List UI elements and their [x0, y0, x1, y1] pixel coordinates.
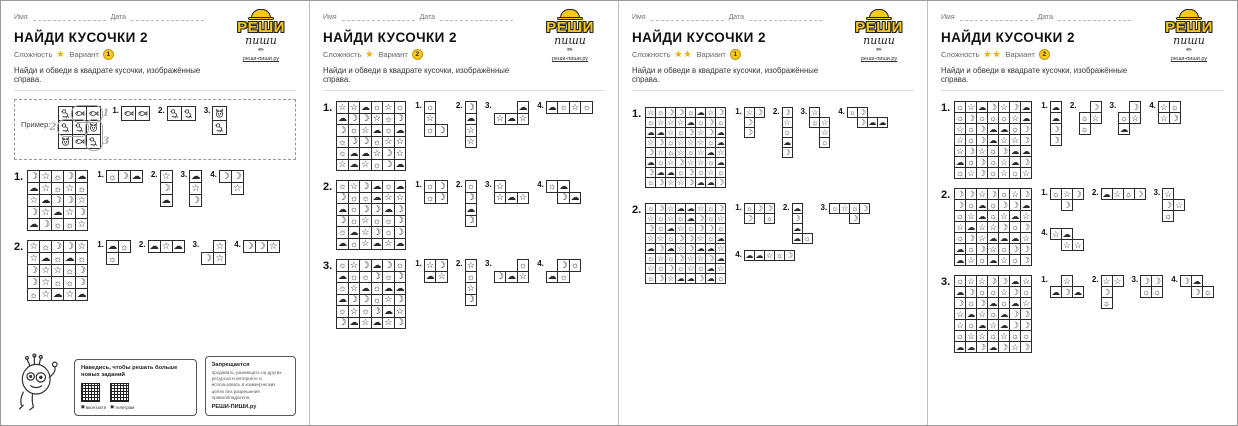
grid-row: ☆☼☽☁☆☆☽ — [954, 134, 1031, 145]
puzzle-piece: 1.☼☽☽☽☼ — [735, 203, 774, 223]
piece-grid: ☁☁☽☽ — [1050, 101, 1061, 145]
grid-row: ☽☼☆☁☼☁ — [336, 124, 405, 136]
beret-icon — [866, 9, 892, 20]
grid-row: ☽☼☁☼☽☽☁ — [954, 199, 1031, 210]
puzzle-row: 1.☽☆☼☽☁☁☆☼☆☼☆☁☽☽☆☽☆☁☆☽☁☽☼☼☆1.☼☽☁2.☆☽☁3.☁… — [14, 170, 296, 230]
grid-row: ☆☁☆☼☽☁ — [336, 159, 405, 171]
grid-row: ☽☆☼☼☽ — [27, 276, 87, 288]
grid-row: ☆☆☁☼☆☼ — [336, 101, 405, 113]
sun-icon: ☼ — [819, 137, 830, 148]
puzzle-row: 1.☆☆☁☼☆☼☁☽☽☆☼☽☽☼☆☁☼☁☼☽☽☼☆☆☼☁☁☆☽☆☆☁☆☼☽☁1.… — [323, 101, 605, 170]
piece-grid: ☁☆☼☽ — [1101, 188, 1145, 199]
logo-word-reshi: РЕШИ — [843, 20, 915, 35]
grid-row: ☆☁☆ — [494, 192, 529, 204]
piece-number: 1. — [415, 259, 422, 268]
puzzle-pieces: 1.☁☁☽☽2.☽☼☆☼3.☽☼☆☁4.☆☼☆☽ — [1041, 101, 1224, 145]
empty-cell — [118, 252, 131, 265]
grid-row: ☁☁☆☼☽ — [744, 250, 794, 260]
example-pieces: 1.2.3. — [112, 106, 289, 134]
piece-grid: ☁☼☼ — [106, 240, 130, 264]
grid-row: ☆☼☆☼☁☽☼☆ — [645, 213, 725, 223]
reshi-pishi-logo: РЕШИпиши✏︎реши-пиши.ру — [843, 9, 915, 62]
moon-icon: ☽ — [1169, 112, 1181, 124]
grid-row: ☆ — [782, 117, 792, 127]
variant-label: Вариант — [1006, 50, 1035, 59]
puzzle-piece: 4.☽☼☁☼ — [537, 259, 580, 282]
grid-row: ☁ — [160, 194, 172, 206]
grid-row: ☼ — [494, 259, 529, 271]
moon-icon: ☽ — [1020, 341, 1032, 353]
puzzle-piece: 3.☽☽☼☼ — [1132, 275, 1163, 297]
grid-row: ☁ — [792, 203, 812, 213]
logo-word-reshi: РЕШИ — [225, 20, 297, 35]
grid-row: ☽ — [782, 147, 792, 157]
grid-row: ☁ — [494, 101, 529, 113]
puzzle-piece: 2.☽☁☆☆ — [456, 101, 476, 147]
piece-grid: ☼☆☼☽☽ — [829, 203, 869, 223]
grid-row: ☁☆☼☁☆☼☽ — [954, 254, 1031, 265]
puzzle-piece: 3.☆☼☆☆☼ — [801, 107, 830, 147]
piece-number: 3. — [801, 107, 808, 116]
puzzle-row: 2.☼☽☆☁☁☆☼☽☆☼☆☼☁☽☼☆☽☼☁☆☼☽☽☼☆☆☼☽☽☆☼☁☁☽☁☆☽☁… — [632, 203, 914, 283]
grid-row: ☁ — [189, 170, 201, 182]
piece-grid: ☆☼☆☆☼ — [809, 107, 829, 147]
star-icon: ☆ — [517, 192, 530, 205]
puzzle-row: 2.☆☼☽☽☆☆☁☼☁☼☽☆☆☼☽☽☆☼☼☽☼☆☁☆☁1.☁☼☼2.☁☆☁3.☆… — [14, 240, 296, 300]
name-date-row: ИмяДата — [14, 12, 204, 21]
puzzle-grid: ☼☽☆☁☁☆☼☽☆☼☆☼☁☽☼☆☽☼☁☆☼☽☽☼☆☆☼☽☽☆☼☁☁☽☁☆☽☁☁☆… — [645, 203, 725, 283]
piece-number: 4. — [1171, 275, 1178, 284]
grid-row: ☽☁☆ — [494, 271, 529, 283]
beret-icon — [1176, 9, 1202, 20]
date-label: Дата — [1038, 14, 1054, 21]
grid-row: ☆☼☽☽☼☁☆☽ — [645, 107, 725, 117]
difficulty-stars-icon: ★ — [365, 49, 374, 60]
promo-title: Наведись, чтобы решать больше новых зада… — [81, 365, 190, 379]
sun-icon: ☼ — [1202, 286, 1214, 298]
piece-number: 2. — [456, 101, 463, 110]
rights-title: Запрещается — [212, 362, 289, 368]
grid-row: ☆☼☽☁☁☼☽ — [954, 123, 1031, 134]
name-blank-line — [960, 12, 1033, 21]
puzzle-grid: ☼☆☆☽☽☁☆☁☽☼☼☆☽☼☽☼☽☁☼☁☆☆☁☆☼☁☽☽☆☼☁☆☁☽☽☼☆☆☼☆… — [954, 275, 1031, 352]
grid-row: ☽ — [1050, 199, 1083, 210]
qr-code-telegram — [110, 383, 129, 402]
grid-row: ☼☆☁☽☆☽☁ — [954, 101, 1031, 112]
puzzle-piece: 1.☆☽☽☽ — [735, 107, 764, 137]
variant-badge: 2 — [412, 49, 423, 60]
puzzle-number: 3. — [323, 260, 332, 272]
puzzle-piece: 2.☆☼☆☽ — [456, 259, 476, 305]
difficulty-label: Сложность — [323, 50, 361, 59]
grid-row: ☆ — [219, 182, 243, 194]
reshi-pishi-logo: РЕШИпиши✏︎реши-пиши.ру — [1153, 9, 1225, 62]
grid-row: ☁☼☽☽☁☽ — [336, 203, 405, 215]
moon-icon: ☽ — [715, 177, 726, 188]
piece-number: 2. — [151, 170, 158, 179]
qr-code-vk — [81, 383, 100, 402]
grid-row: ☼☽☆☁☁☁☆ — [954, 232, 1031, 243]
star-icon: ☆ — [465, 136, 478, 149]
puzzle-number: 2. — [14, 241, 23, 253]
puzzle-pieces: 1.☆☁☽☁2.☆☆☽☼3.☽☽☼☼4.☽☁☽☼ — [1041, 275, 1224, 308]
grid-row: ☁ — [1050, 101, 1061, 112]
puzzle-number: 2. — [632, 204, 641, 216]
grid-row: ☼☆ — [1118, 112, 1140, 123]
puzzle-piece: 3.☆☽☆☼ — [1154, 188, 1185, 221]
puzzle-piece: 2.☽☆☼☁☽ — [773, 107, 792, 157]
instruction-text: Найди и обведи в квадрате кусочки, изобр… — [941, 66, 1156, 84]
piece-grid: ☽☽☆ — [243, 240, 279, 252]
grid-row: ☽☆☁☆☽ — [27, 206, 87, 218]
date-label: Дата — [111, 14, 127, 21]
piece-grid: ☽☼☁☼ — [546, 259, 581, 282]
difficulty-stars-icon: ★★ — [674, 49, 692, 60]
grid-row: ☁☼ — [106, 240, 130, 252]
piece-grid: ☆☽☽☽ — [744, 107, 764, 137]
piece-number: 1. — [1041, 101, 1048, 110]
worksheet-page: ИмяДатаРЕШИпиши✏︎реши-пиши.руНАЙДИ КУСОЧ… — [310, 1, 619, 425]
piece-number: 3. — [181, 170, 188, 179]
puzzle-piece: 2.☁☆☼☽ — [1092, 188, 1145, 199]
mascot-illustration — [14, 353, 66, 416]
logo-word-reshi: РЕШИ — [534, 20, 606, 35]
grid-row: ☽☆ — [201, 252, 225, 264]
puzzle-pieces: 1.☆☽☁☆2.☆☼☆☽3.☼☽☁☆4.☽☼☁☼ — [415, 259, 605, 305]
example-box: Пример:1231.2.3. — [14, 99, 296, 160]
star-icon: ☆ — [213, 252, 226, 265]
grid-row: ☁☼☽☆☼☽☽ — [954, 243, 1031, 254]
piece-number: 1. — [735, 203, 742, 212]
puzzle-number: 1. — [941, 102, 950, 114]
name-date-row: ИмяДата — [941, 12, 1131, 21]
puzzle-piece: 3.☼☆☼☽☽ — [821, 203, 870, 223]
grid-row: ☽☆☆☼☽ — [27, 264, 87, 276]
fish-icon — [121, 106, 136, 121]
piece-grid: ☽☆☼☁☽ — [782, 107, 792, 157]
piece-grid: ☆☼☆☽ — [465, 259, 477, 305]
pencil-icon: ✏︎ — [225, 47, 297, 54]
promo-box: Наведись, чтобы решать больше новых зада… — [74, 359, 197, 416]
grid-row: ☼☆☁☼☆☁☆ — [954, 210, 1031, 221]
grid-row: ☽ — [465, 101, 477, 113]
empty-cell — [1072, 199, 1084, 211]
puzzle-pieces: 1.☼☆☼☽2.☽☁☆☆3.☁☆☁☆4.☁☼☆☼ — [415, 101, 605, 147]
grid-row — [121, 106, 149, 120]
piece-grid: ☁☁☆☼☽ — [744, 250, 794, 260]
puzzle-piece: 1.☼☆☽☽ — [1041, 188, 1083, 210]
piece-grid — [167, 106, 195, 120]
grid-row: ☼☽☆☆☽☁☁☽ — [645, 177, 725, 187]
puzzle-piece: 4.☽☁☽☼ — [1171, 275, 1213, 297]
grid-row: ☼☁☆☽☼☽ — [336, 226, 405, 238]
piece-grid: ☽☁☆☆ — [465, 101, 477, 147]
puzzle-piece: 1.☁☼☼ — [97, 240, 130, 264]
empty-cell — [1090, 123, 1102, 135]
header-divider — [941, 90, 1224, 91]
piece-grid: ☁☼☆☼ — [546, 101, 592, 113]
piece-number: 2. — [1092, 188, 1099, 197]
puzzle-piece: 2.☁☆☁ — [139, 240, 184, 252]
piece-number: 2. — [456, 259, 463, 268]
puzzle-grid: ☽☽☆☽☼☆☽☽☼☁☼☽☽☁☼☆☁☼☆☁☆☆☁☆☆☽☼☽☼☽☆☁☁☁☆☁☼☽☆☼… — [954, 188, 1031, 265]
piece-number: 1. — [415, 101, 422, 110]
puzzle-piece: 3.☼☽☁☆ — [485, 259, 528, 282]
grid-row: ☼☆ — [1079, 112, 1101, 123]
grid-row: ☼ — [465, 180, 477, 192]
grid-row: ☽ — [744, 127, 764, 137]
logo-word-pishi: пиши — [225, 35, 297, 47]
grid-row: ☼☆☆☼☆☼☼ — [954, 330, 1031, 341]
grid-row: ☽☽ — [219, 170, 243, 182]
piece-number: 4. — [537, 101, 544, 110]
grid-row: ☁☆ — [424, 271, 447, 283]
difficulty-stars-icon: ★★ — [983, 49, 1001, 60]
empty-cell — [859, 213, 870, 224]
grid-row: ☆ — [189, 182, 201, 194]
puzzle-grid: ☽☆☼☽☁☁☆☼☆☼☆☁☽☽☆☽☆☁☆☽☁☽☼☼☆ — [27, 170, 87, 230]
instruction-text: Найди и обведи в квадрате кусочки, изобр… — [632, 66, 847, 84]
page-footer: Наведись, чтобы решать больше новых зада… — [14, 353, 296, 416]
cloud-icon: ☁ — [1072, 286, 1084, 298]
name-label: Имя — [323, 14, 337, 21]
grid-row: ☼☽ — [424, 180, 447, 192]
grid-row: ☁ — [782, 137, 792, 147]
name-date-row: ИмяДата — [323, 12, 513, 21]
grid-row: ☁☆☼☆☼ — [27, 182, 87, 194]
example-piece: 2. — [158, 106, 195, 120]
qr-label-text: телеграм — [115, 405, 134, 410]
piece-number: 3. — [821, 203, 828, 212]
star-icon: ☆ — [517, 271, 530, 284]
grid-row: ☆☁☽☽☆ — [27, 194, 87, 206]
date-blank-line — [749, 12, 822, 21]
example-piece: 1. — [112, 106, 149, 120]
piece-grid: ☼☽☽☽☼ — [744, 203, 774, 223]
logo-word-pishi: пиши — [1153, 35, 1225, 47]
grid-row: ☆☁☆ — [494, 113, 529, 125]
grid-row: ☆☆ — [1050, 239, 1083, 250]
variant-badge: 1 — [730, 49, 741, 60]
puzzle-piece: 4.☼☽☽☁☁ — [838, 107, 887, 127]
puzzle-grid: ☆☼☽☽☆☆☁☼☁☼☽☆☆☼☽☽☆☼☼☽☼☆☁☆☁ — [27, 240, 87, 300]
grid-row: ☁☆☁ — [148, 240, 184, 252]
puzzle-piece: 4.☆☁☆☆ — [1041, 228, 1083, 250]
puzzle-row: 3.☼☆☽☁☽☼☁☼☼☽☼☽☼☆☁☼☁☁☁☽☽☼☆☽☼☆☼☽☁☆☽☁☆☁☆☽1.… — [323, 259, 605, 328]
piece-grid: ☽☼☆☁ — [1118, 101, 1140, 134]
grid-row: ☼☽☼☼☼☆☁ — [954, 112, 1031, 123]
grid-row — [212, 106, 226, 120]
grid-row: ☽☼☼☁☆☆ — [336, 192, 405, 204]
grid-row: ☆☆ — [1101, 275, 1123, 286]
grid-row: ☼☼ — [1140, 286, 1162, 297]
piece-grid: ☼☽☽☁☁ — [847, 107, 887, 127]
logo-word-pishi: пиши — [534, 35, 606, 47]
grid-row: ☆ — [465, 282, 477, 294]
star-icon: ☆ — [1020, 167, 1032, 179]
puzzle-number: 1. — [14, 171, 23, 183]
grid-row: ☽☁☁ — [847, 117, 887, 127]
pencil-icon: ✏︎ — [1153, 47, 1225, 54]
puzzle-piece: 3.☆☆☁☆ — [485, 180, 528, 203]
puzzle-piece: 2.☆☆☽☼ — [1092, 275, 1123, 308]
rights-brand: РЕШИ-ПИШИ.ру — [212, 404, 289, 410]
puzzle-piece: 2.☼☽☁☽ — [456, 180, 476, 226]
grid-row: ☼☆☼☽☆☆☽☁ — [645, 253, 725, 263]
piece-grid: ☆☁☆☆ — [1050, 228, 1083, 250]
grid-row: ☽ — [829, 213, 869, 223]
piece-grid: ☽☁☽☼ — [1180, 275, 1213, 297]
puzzle-grid: ☆☆☁☼☆☼☁☽☽☆☼☽☽☼☆☁☼☁☼☽☽☼☆☆☼☁☁☆☽☆☆☁☆☼☽☁ — [336, 101, 405, 170]
empty-cell — [754, 127, 765, 138]
puzzle-pieces: 1.☼☆☽☽2.☁☆☼☽3.☆☽☆☼4.☆☁☆☆ — [1041, 188, 1224, 250]
grid-row: ☆ — [160, 170, 172, 182]
puzzle-number: 1. — [632, 108, 641, 120]
grid-row: ☆ — [809, 127, 829, 137]
grid-row: ☆ — [201, 240, 225, 252]
difficulty-label: Сложность — [632, 50, 670, 59]
star-icon: ☆ — [75, 218, 88, 231]
grid-row: ☽ — [1050, 123, 1061, 134]
piece-grid: ☁☽☁☁☼ — [792, 203, 812, 243]
worksheet-page: ИмяДатаРЕШИпиши✏︎реши-пиши.руНАЙДИ КУСОЧ… — [1, 1, 310, 425]
piece-number: 4. — [1041, 228, 1048, 237]
date-blank-line — [1058, 12, 1131, 21]
grid-row: ☽☽ — [1140, 275, 1162, 286]
puzzle-row: 3.☼☆☆☽☽☁☆☁☽☼☼☆☽☼☽☼☽☁☼☁☆☆☁☆☼☁☽☽☆☼☁☆☁☽☽☼☆☆… — [941, 275, 1224, 352]
grid-row: ☆☁☆☼☁☽☽ — [954, 308, 1031, 319]
grid-row: ☼☆☽☁☼☁ — [336, 180, 405, 192]
sun-icon: ☼ — [580, 101, 593, 114]
name-label: Имя — [632, 14, 646, 21]
grid-row: ☽☁ — [546, 192, 581, 204]
puzzle-piece: 4.☽☽☆ — [210, 170, 243, 194]
piece-number: 4. — [537, 259, 544, 268]
name-date-row: ИмяДата — [632, 12, 822, 21]
grid-row: ☆☆☼☽☽☆☼☁ — [645, 233, 725, 243]
puzzle-piece: 4.☽☽☆ — [234, 240, 279, 252]
piece-number: 2. — [456, 180, 463, 189]
bird-icon — [212, 120, 227, 135]
grid-row: ☼ — [424, 101, 447, 113]
piece-grid: ☁☆☁☆ — [494, 101, 529, 124]
grid-row: ☼☆☽☼☆☼☆ — [954, 167, 1031, 178]
puzzle-grid: ☼☆☽☁☽☼☁☼☼☽☼☽☼☆☁☼☁☁☁☽☽☼☆☽☼☆☼☽☁☆☽☁☆☁☆☽ — [336, 259, 405, 328]
grid-row: ☁☽☼☼☆☽☼ — [954, 286, 1031, 297]
beret-icon — [248, 9, 274, 20]
grid-row: ☁☼ — [546, 271, 581, 283]
empty-cell — [1129, 123, 1141, 135]
piece-grid: ☆☁☽☁ — [1050, 275, 1083, 297]
sun-icon: ☼ — [715, 273, 726, 284]
piece-number: 2. — [783, 203, 790, 212]
puzzle-number: 3. — [941, 276, 950, 288]
cloud-icon: ☁ — [394, 159, 407, 172]
cloud-icon: ☁ — [569, 192, 582, 205]
puzzle-grid: ☆☼☽☽☼☁☆☽☼☆☆☆☁☼☽☼☁☁☆☼☽☆☽☁☆☽☼☆☆☆☼☁☽☆☼☆☼☆☁☆… — [645, 107, 725, 187]
header-divider — [14, 90, 296, 91]
grid-row: ☁☁☽☁☽☆☽ — [954, 341, 1031, 352]
difficulty-label: Сложность — [14, 50, 52, 59]
grid-row: ☽☼ — [546, 259, 581, 271]
grid-row: ☼☆☽ — [1050, 188, 1083, 199]
example-label: Пример: — [21, 120, 50, 129]
cloud-icon: ☁ — [394, 238, 407, 251]
grid-row: ☽☽☆ — [243, 240, 279, 252]
pencil-icon: ✏︎ — [534, 47, 606, 54]
sun-icon: ☼ — [802, 233, 813, 244]
piece-number: 4. — [1149, 101, 1156, 110]
grid-row: ☆☁ — [1050, 228, 1083, 239]
moon-icon: ☽ — [394, 317, 407, 330]
piece-number: 1. — [97, 240, 104, 249]
grid-row: ☼☆☁☼☁☁ — [336, 282, 405, 294]
grid-row — [167, 106, 195, 120]
grid-row: ☆ — [809, 107, 829, 117]
social-icon: ◼ — [81, 404, 85, 410]
moon-icon: ☽ — [465, 215, 478, 228]
logo-site-link: реши-пиши.ру — [843, 56, 915, 62]
grid-row: ☽ — [744, 117, 764, 127]
piece-grid: ☆☽☁ — [160, 170, 172, 206]
example-grid-wrap: 123 — [58, 106, 100, 152]
qr-code-vk-column: ◼вконтакте — [81, 383, 106, 410]
moon-icon: ☽ — [1020, 254, 1032, 266]
puzzle-piece: 1.☼☽☁ — [97, 170, 142, 182]
grid-row: ☼ — [106, 252, 130, 264]
puzzle-pieces: 1.☼☽☽☽☼2.☁☽☁☁☼3.☼☆☼☽☽4.☁☁☆☼☽ — [735, 203, 914, 260]
grid-row: ☽☆☼☆☼☆☁☆ — [645, 147, 725, 157]
grid-row: ☆ — [494, 180, 529, 192]
grid-row: ☁☁☆☼☽☆☽☁ — [645, 127, 725, 137]
grid-row: ☼☽☆☁☁☆☼☽ — [645, 203, 725, 213]
qr-code-telegram-column: ◼телеграм — [110, 383, 134, 410]
piece-number: 3. — [485, 259, 492, 268]
grid-row: ☼ — [782, 127, 792, 137]
puzzle-piece: 3.☽☼☆☁ — [1110, 101, 1141, 134]
grid-row: ☽ — [189, 194, 201, 206]
grid-row: ☼☆☆☆☁☼☽☼ — [645, 117, 725, 127]
grid-row: ☽ — [792, 213, 812, 223]
grid-row: ☼☽☽☼☆☆ — [336, 136, 405, 148]
bird-icon — [181, 106, 196, 121]
puzzle-number: 2. — [323, 181, 332, 193]
piece-grid: ☽☽☆ — [219, 170, 243, 194]
qr-label-text: вконтакте — [86, 405, 106, 410]
grid-row: ☽ — [1050, 134, 1061, 145]
piece-grid: ☆☽☆☼ — [1162, 188, 1184, 221]
grid-row: ☆ — [1050, 275, 1083, 286]
date-label: Дата — [729, 14, 745, 21]
grid-row: ☼☆☽☁☽☼ — [336, 259, 405, 271]
logo-site-link: реши-пиши.ру — [225, 56, 297, 62]
grid-row: ☽☆ — [1162, 199, 1184, 210]
grid-row: ☽ — [1079, 101, 1101, 112]
grid-row: ☽ — [1118, 101, 1140, 112]
example-circle-number: 2 — [49, 122, 56, 133]
date-label: Дата — [420, 14, 436, 21]
grid-row: ☆☼☽☽☆ — [27, 240, 87, 252]
grid-row: ☼ — [465, 271, 477, 283]
piece-grid: ☆☆☁☆ — [494, 180, 529, 203]
instruction-text: Найди и обведи в квадрате кусочки, изобр… — [323, 66, 538, 84]
puzzle-pieces: 1.☆☽☽☽2.☽☆☼☁☽3.☆☼☆☆☼4.☼☽☽☁☁ — [735, 107, 914, 157]
grid-row: ☁ — [1050, 112, 1061, 123]
worksheet-page: ИмяДатаРЕШИпиши✏︎реши-пиши.руНАЙДИ КУСОЧ… — [619, 1, 928, 425]
grid-row: ☆☽ — [744, 107, 764, 117]
puzzle-piece: 2.☽☼☆☼ — [1070, 101, 1101, 134]
qr-code-telegram-label: ◼телеграм — [110, 404, 134, 410]
